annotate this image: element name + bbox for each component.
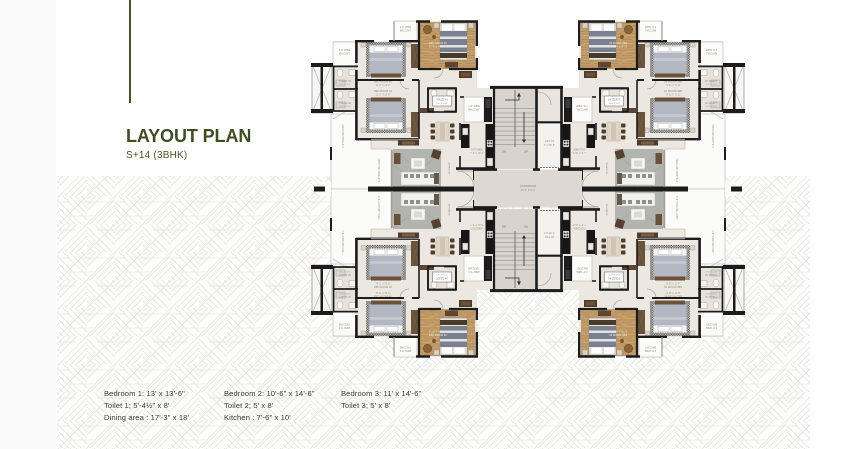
svg-text:CORRIDOR: CORRIDOR <box>520 184 537 188</box>
svg-text:29'-9" X 6'-0": 29'-9" X 6'-0" <box>521 188 536 192</box>
